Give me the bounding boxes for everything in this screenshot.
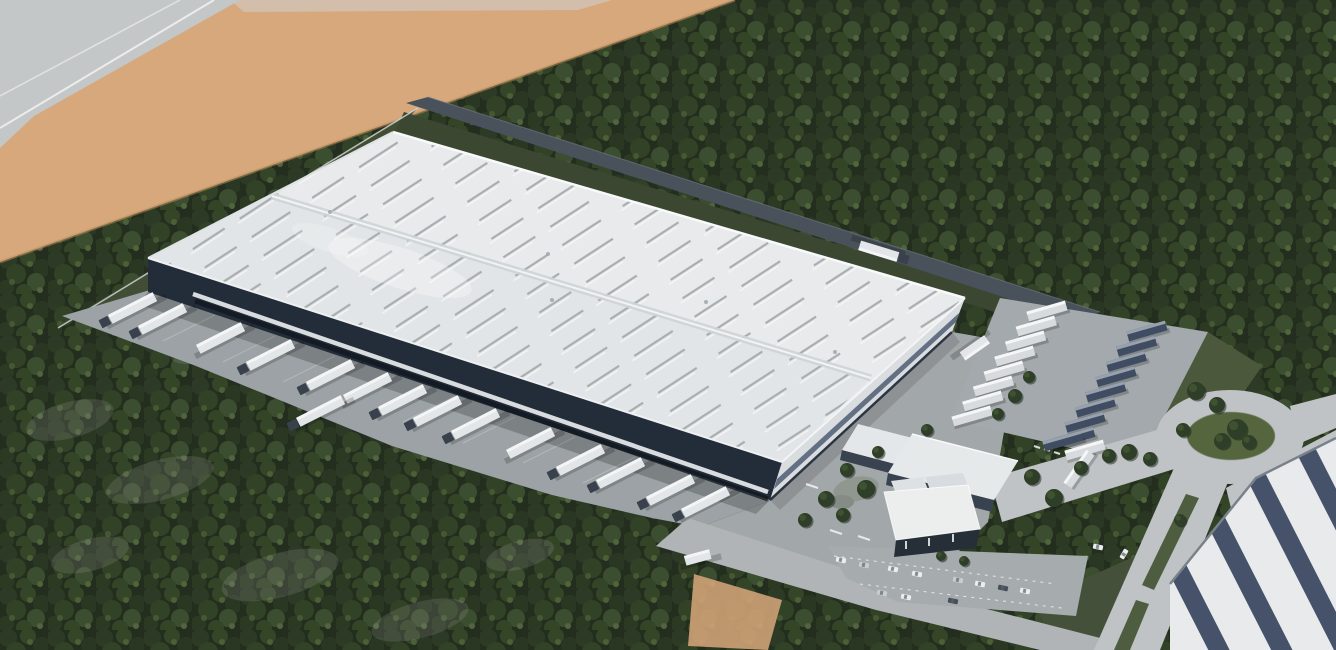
tree-crown [840,463,854,477]
tree-highlight [1075,462,1081,468]
tree-highlight [1103,450,1109,456]
tree-highlight [1229,421,1238,430]
tree-crown [1214,433,1230,449]
tree-crown [921,424,933,436]
tree-highlight [873,447,878,452]
tree-crown [1102,449,1116,463]
aerial-render [0,0,1336,650]
tree-crown [1227,419,1247,439]
tree-highlight [1144,453,1150,459]
tree-highlight [1047,491,1055,499]
tree-crown [1045,489,1063,507]
tree-crown [1121,444,1137,460]
tree-highlight [1243,436,1249,442]
tree-crown [872,446,884,458]
tree-highlight [820,493,827,500]
tree-crown [1008,389,1022,403]
tree-crown [1209,397,1225,413]
tree-crown [1176,423,1190,437]
tree-highlight [1177,424,1183,430]
tree-highlight [1024,372,1029,377]
tree-crown [959,556,969,566]
tree-crown [1242,435,1256,449]
tree-crown [936,551,946,561]
tree-highlight [937,552,942,557]
tree-crown [1174,514,1186,526]
tree-highlight [1189,384,1197,392]
tree-highlight [859,482,867,490]
tree-highlight [1026,471,1033,478]
tree-highlight [837,509,843,515]
gatehouse [884,473,980,557]
tree-crown [798,513,812,527]
tree-highlight [1175,515,1180,520]
tree-crown [992,408,1004,420]
tree-crown [857,480,875,498]
tree-highlight [1009,390,1015,396]
tree-highlight [960,557,965,562]
tree-highlight [922,425,927,430]
tree-crown [1143,452,1157,466]
tree-highlight [993,409,998,414]
tree-crown [1024,469,1040,485]
tree-crown [1187,382,1205,400]
tree-highlight [1216,435,1223,442]
tree-highlight [841,464,847,470]
tree-highlight [1123,446,1130,453]
tree-crown [1023,371,1035,383]
tree-crown [818,491,834,507]
tree-crown [836,508,850,522]
scene-svg [0,0,1336,650]
tree-highlight [799,514,805,520]
tree-crown [1074,461,1088,475]
tree-highlight [1211,399,1218,406]
